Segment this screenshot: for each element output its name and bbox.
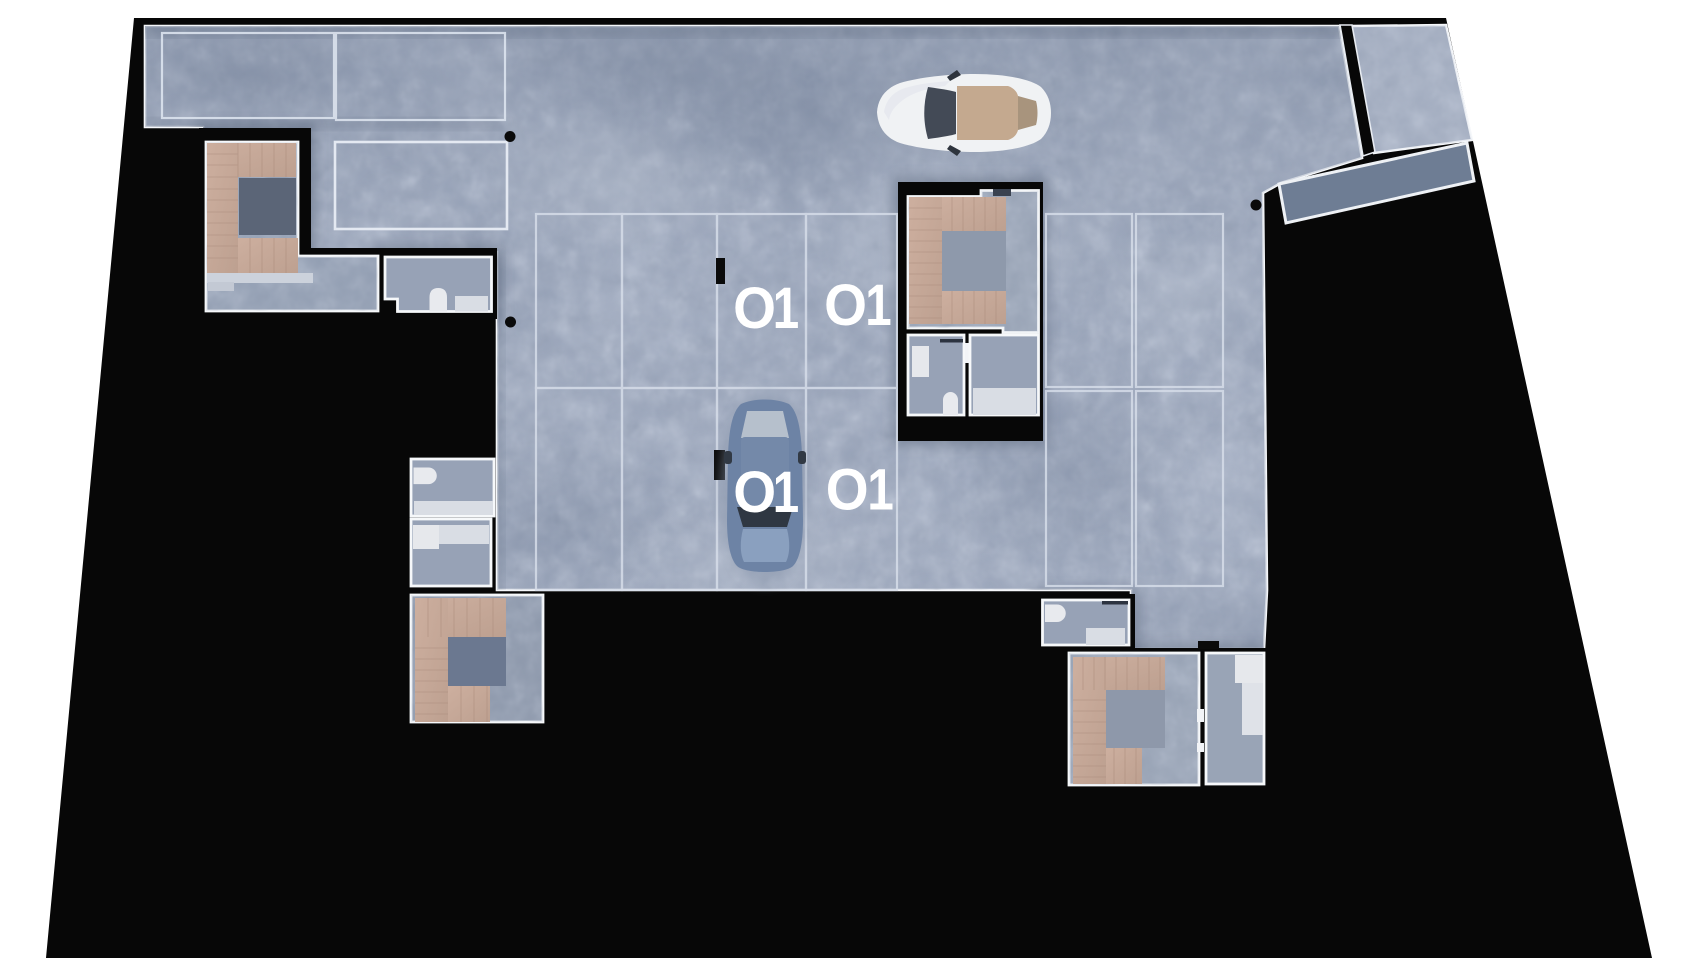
svg-text:O: O [733,460,776,525]
svg-text:1: 1 [773,461,799,526]
svg-text:O: O [733,276,776,341]
svg-text:O: O [826,457,869,522]
svg-text:1: 1 [865,274,891,339]
svg-text:1: 1 [867,458,893,523]
svg-text:O: O [824,273,867,338]
svg-text:1: 1 [773,277,799,342]
